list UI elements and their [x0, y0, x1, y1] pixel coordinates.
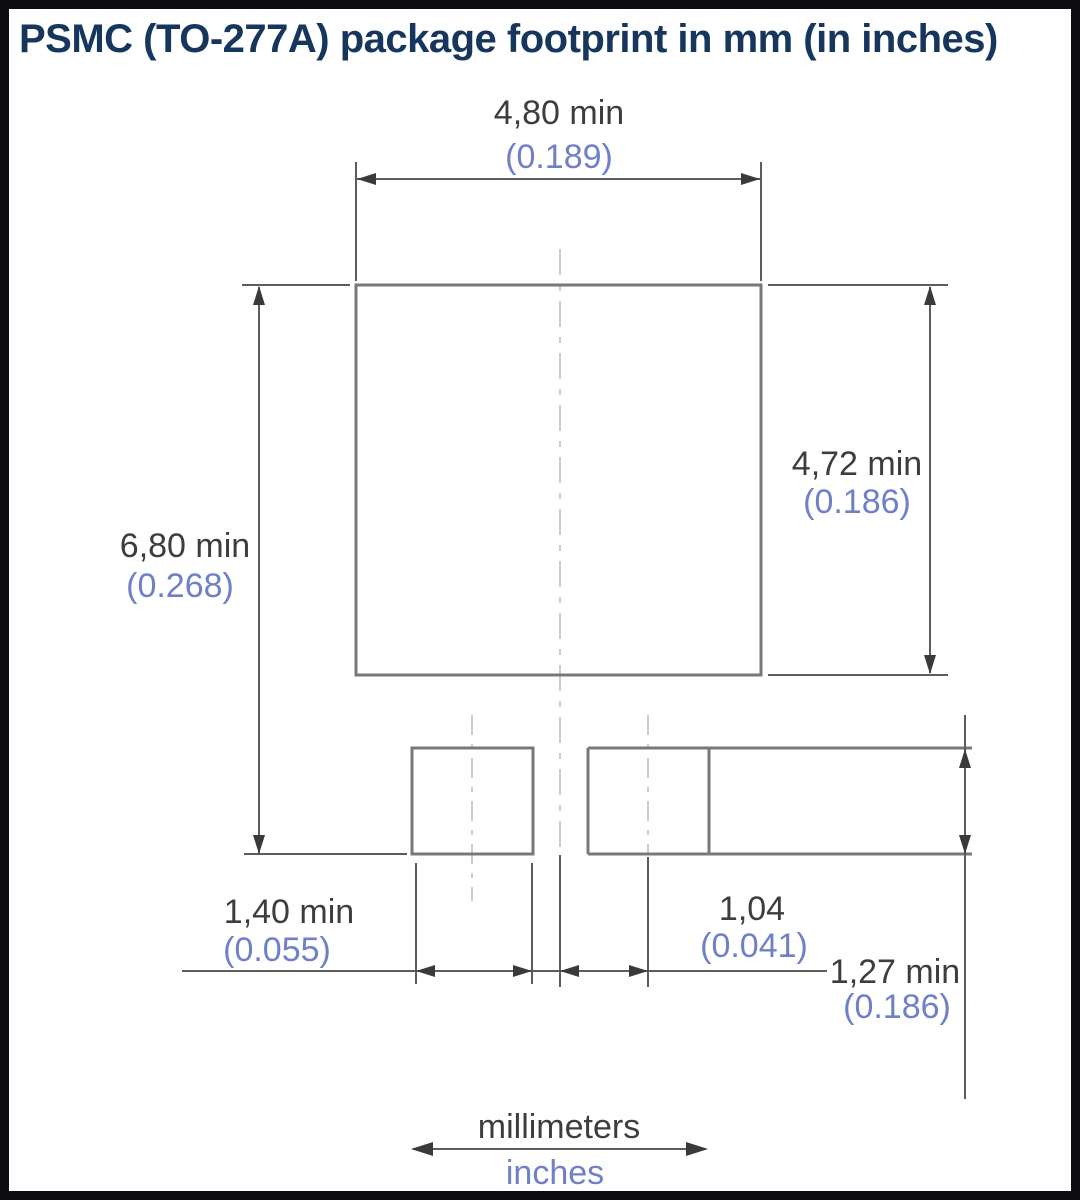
arrow-offset-left: [560, 965, 579, 977]
arrow-right-down: [924, 655, 936, 674]
dim-overall-height-inch: (0.268): [126, 569, 234, 603]
dim-small-pad-height-mm: 1,27 min: [830, 955, 960, 989]
dim-footprint-width-inch: (0.189): [505, 140, 613, 174]
diagram-page: PSMC (TO-277A) package footprint in mm (…: [0, 0, 1080, 1200]
dim-small-pad-height-inch: (0.186): [843, 990, 951, 1024]
legend-inches-label: inches: [506, 1156, 604, 1190]
arrow-top-left: [357, 173, 376, 185]
arrow-right-up: [924, 286, 936, 305]
arrow-top-right: [741, 173, 760, 185]
arrow-left-down: [253, 835, 265, 854]
arrow-legend-right: [686, 1142, 708, 1156]
dim-small-pad-width-mm: 1,40 min: [224, 895, 354, 929]
arrow-left-up: [253, 286, 265, 305]
dim-small-pad-width-inch: (0.055): [223, 933, 331, 967]
legend-millimeters-label: millimeters: [478, 1110, 640, 1144]
dim-footprint-height-mm: 4,72 min: [792, 447, 922, 481]
dim-center-offset-inch: (0.041): [700, 929, 808, 963]
centerlines: [472, 249, 648, 901]
pad-outlines: [356, 285, 972, 854]
arrow-padw-right: [513, 965, 532, 977]
dim-overall-height-mm: 6,80 min: [120, 529, 250, 563]
arrow-legend-left: [411, 1142, 433, 1156]
dim-footprint-width-mm: 4,80 min: [494, 96, 624, 130]
arrow-padh-down: [959, 835, 971, 854]
arrow-padw-left: [416, 965, 435, 977]
dim-center-offset-mm: 1,04: [719, 892, 785, 926]
main-pad-outline: [356, 285, 761, 675]
arrow-padh-up: [959, 749, 971, 768]
arrow-offset-right: [629, 965, 648, 977]
dim-footprint-height-inch: (0.186): [803, 485, 911, 519]
